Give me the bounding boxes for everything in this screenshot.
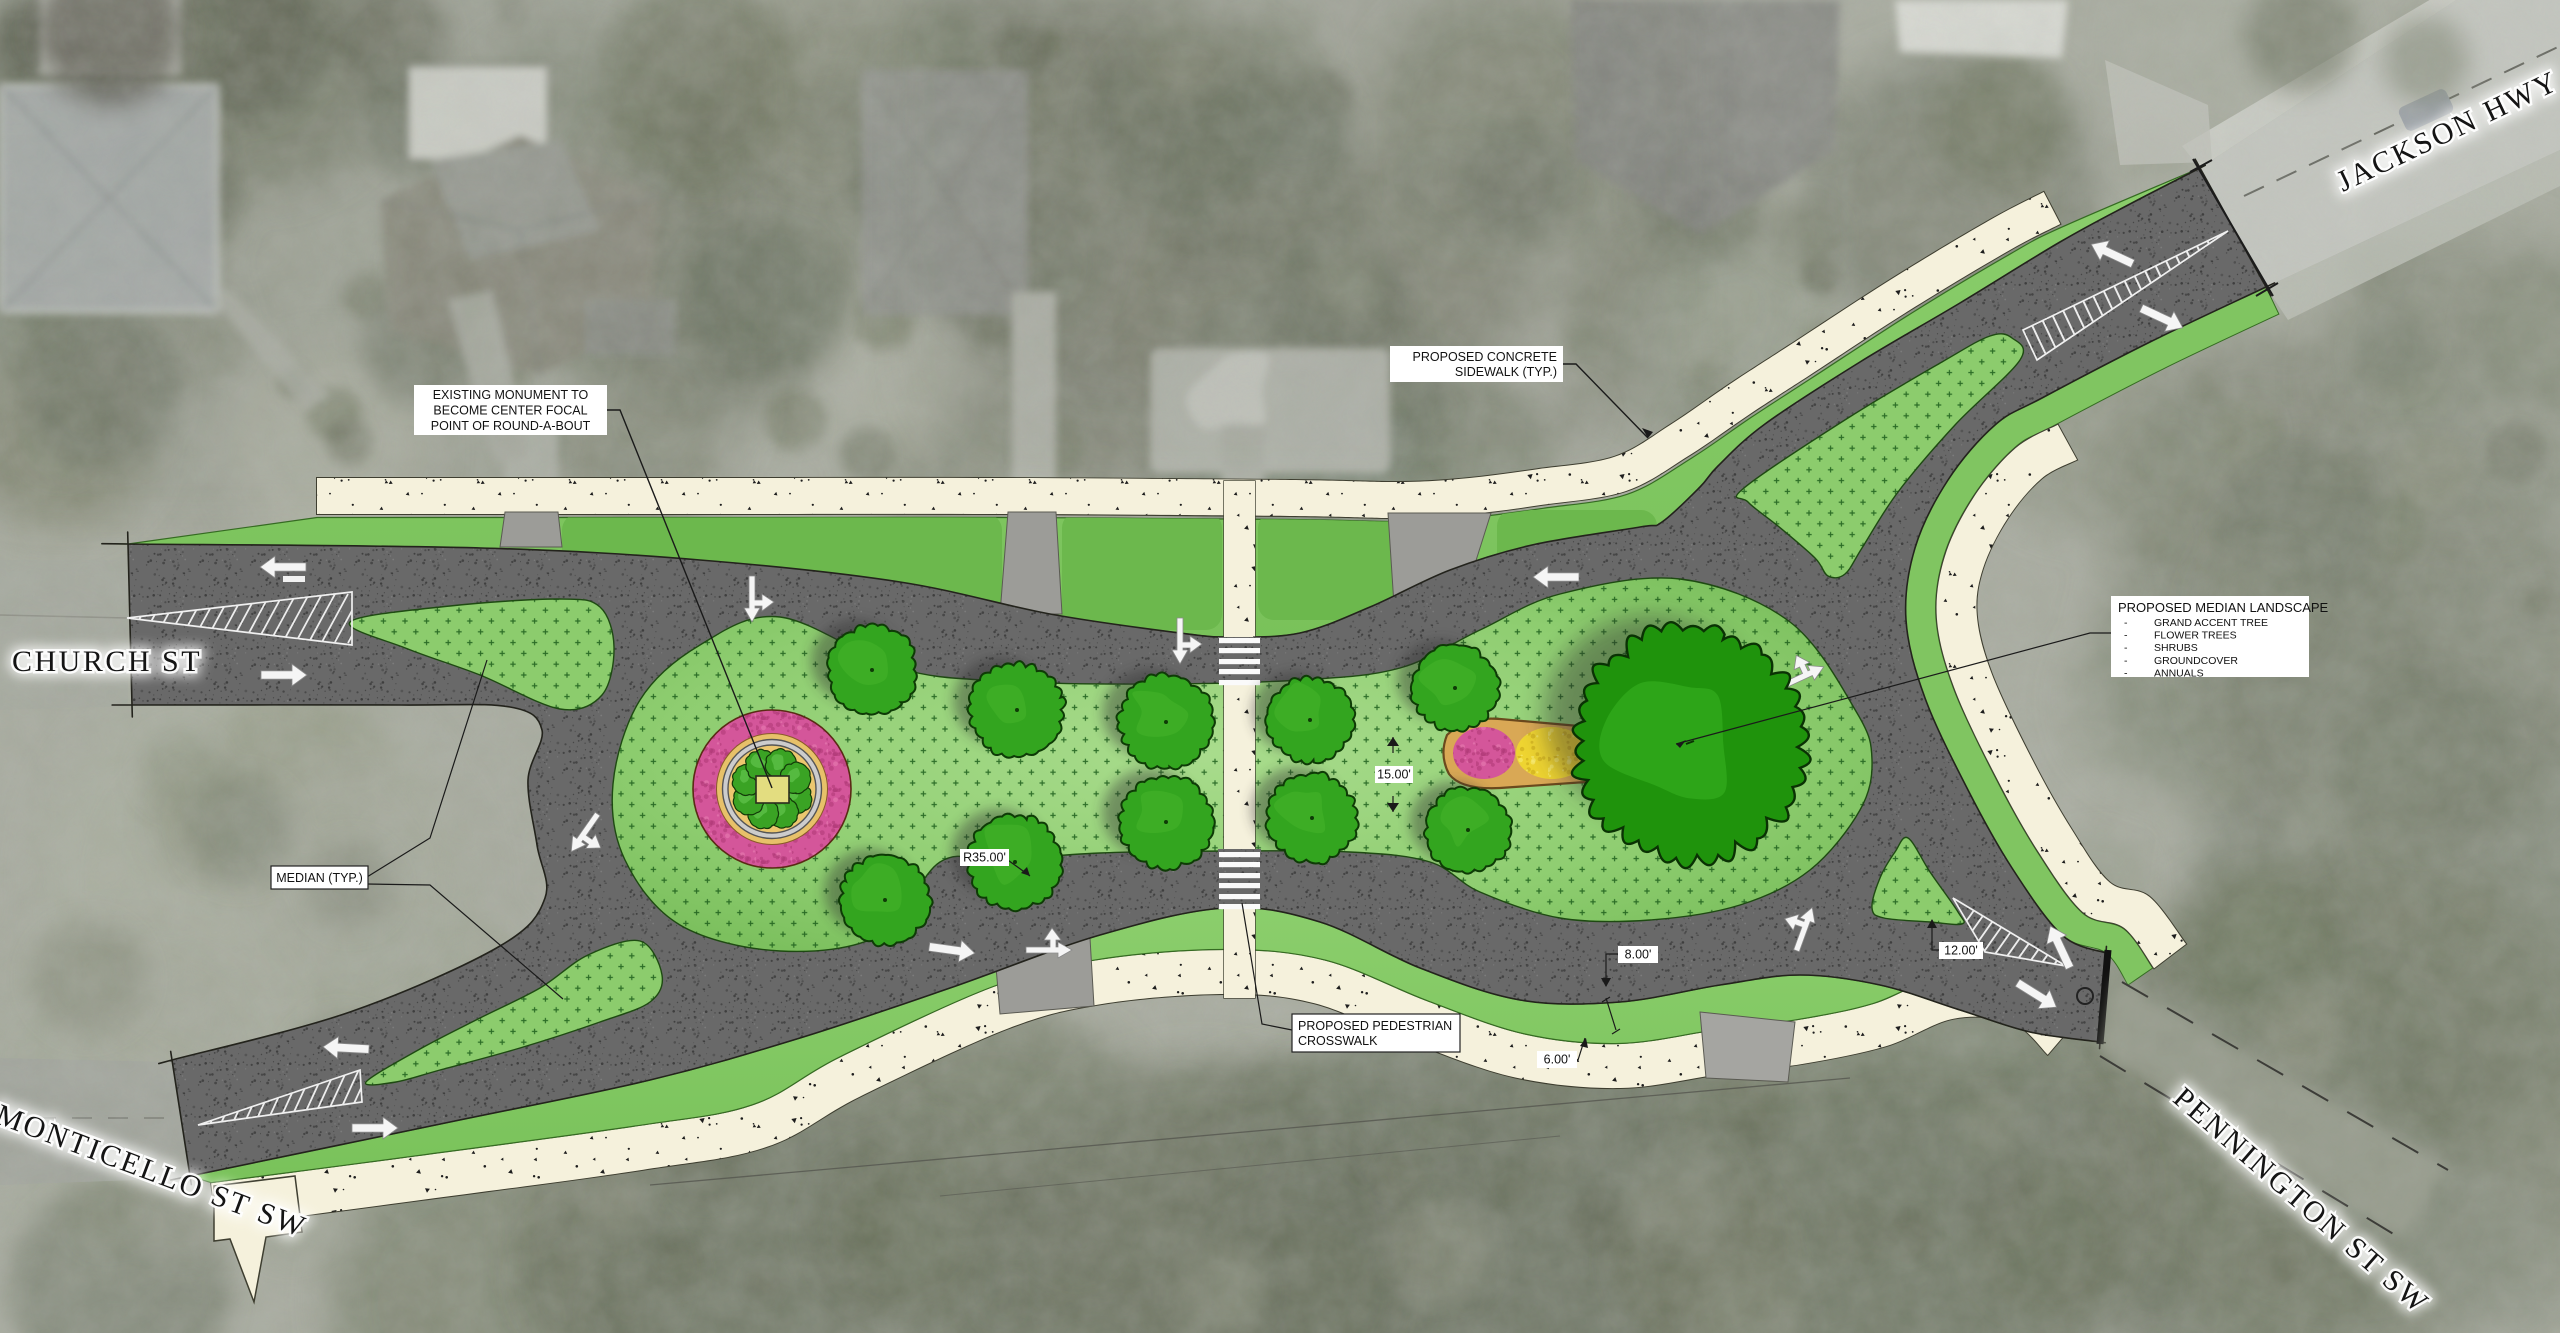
svg-text:15.00': 15.00' bbox=[1377, 768, 1411, 782]
svg-text:-: - bbox=[2124, 630, 2128, 642]
svg-text:SIDEWALK (TYP.): SIDEWALK (TYP.) bbox=[1455, 365, 1557, 379]
svg-text:PROPOSED MEDIAN LANDSCAPE: PROPOSED MEDIAN LANDSCAPE bbox=[2118, 600, 2329, 615]
svg-text:R35.00': R35.00' bbox=[963, 851, 1006, 865]
svg-text:-: - bbox=[2124, 617, 2128, 629]
svg-text:POINT OF ROUND-A-BOUT: POINT OF ROUND-A-BOUT bbox=[431, 419, 591, 433]
svg-text:EXISTING MONUMENT TO: EXISTING MONUMENT TO bbox=[433, 388, 589, 402]
svg-text:-: - bbox=[2124, 642, 2128, 654]
svg-text:6.00': 6.00' bbox=[1544, 1053, 1571, 1067]
svg-text:-: - bbox=[2124, 655, 2128, 667]
svg-text:GRAND ACCENT TREE: GRAND ACCENT TREE bbox=[2154, 617, 2268, 629]
svg-text:ANNUALS: ANNUALS bbox=[2154, 667, 2204, 679]
svg-text:MEDIAN (TYP.): MEDIAN (TYP.) bbox=[276, 871, 363, 885]
svg-text:-: - bbox=[2124, 667, 2128, 679]
svg-text:CROSSWALK: CROSSWALK bbox=[1298, 1034, 1378, 1048]
svg-text:FLOWER TREES: FLOWER TREES bbox=[2154, 630, 2237, 642]
svg-text:BECOME CENTER FOCAL: BECOME CENTER FOCAL bbox=[433, 404, 587, 418]
svg-text:8.00': 8.00' bbox=[1625, 948, 1652, 962]
svg-text:GROUNDCOVER: GROUNDCOVER bbox=[2154, 655, 2238, 667]
svg-text:12.00': 12.00' bbox=[1944, 944, 1978, 958]
svg-text:SHRUBS: SHRUBS bbox=[2154, 642, 2198, 654]
svg-text:CHURCH ST: CHURCH ST bbox=[12, 645, 202, 678]
svg-text:PROPOSED CONCRETE: PROPOSED CONCRETE bbox=[1413, 350, 1557, 364]
svg-text:PROPOSED PEDESTRIAN: PROPOSED PEDESTRIAN bbox=[1298, 1019, 1452, 1033]
